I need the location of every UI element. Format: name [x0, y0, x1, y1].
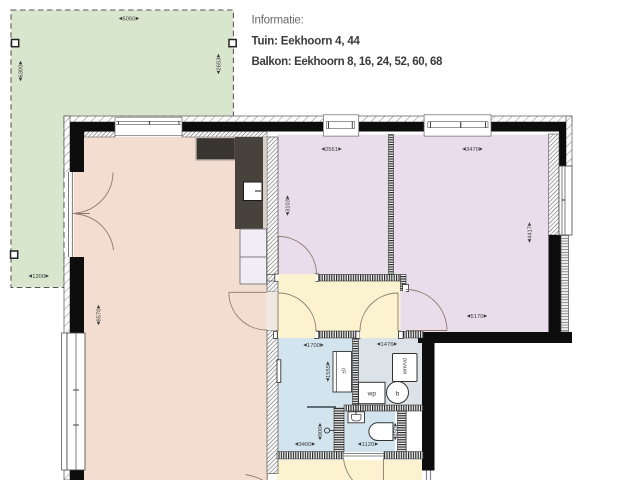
svg-text:450: 450: [393, 427, 399, 437]
svg-text:1120: 1120: [362, 442, 374, 448]
svg-text:900: 900: [318, 427, 324, 437]
svg-text:1555: 1555: [326, 365, 332, 378]
svg-text:1200: 1200: [32, 274, 45, 280]
svg-text:4417: 4417: [528, 226, 534, 239]
svg-text:Balkon: Eekhoorn 8, 16, 24, 52: Balkon: Eekhoorn 8, 16, 24, 52, 60, 68: [252, 56, 444, 68]
svg-text:5050: 5050: [123, 17, 136, 23]
svg-text:1476: 1476: [381, 342, 394, 348]
svg-text:8570: 8570: [97, 309, 103, 322]
svg-text:3400: 3400: [299, 442, 312, 448]
svg-text:±0: ±0: [342, 368, 348, 374]
svg-text:1700: 1700: [307, 343, 320, 349]
svg-text:Tuin: Eekhoorn 4, 44: Tuin: Eekhoorn 4, 44: [252, 36, 361, 48]
svg-text:wm/vd: wm/vd: [403, 358, 409, 375]
svg-text:wp: wp: [367, 391, 377, 398]
svg-text:3470: 3470: [466, 147, 479, 153]
svg-text:Informatie:: Informatie:: [252, 15, 304, 27]
svg-text:b: b: [396, 391, 400, 398]
svg-text:3103: 3103: [286, 199, 292, 212]
svg-text:5170: 5170: [471, 314, 484, 320]
svg-text:2561: 2561: [325, 147, 338, 153]
svg-text:6300: 6300: [19, 65, 25, 78]
svg-text:2653: 2653: [216, 58, 222, 71]
